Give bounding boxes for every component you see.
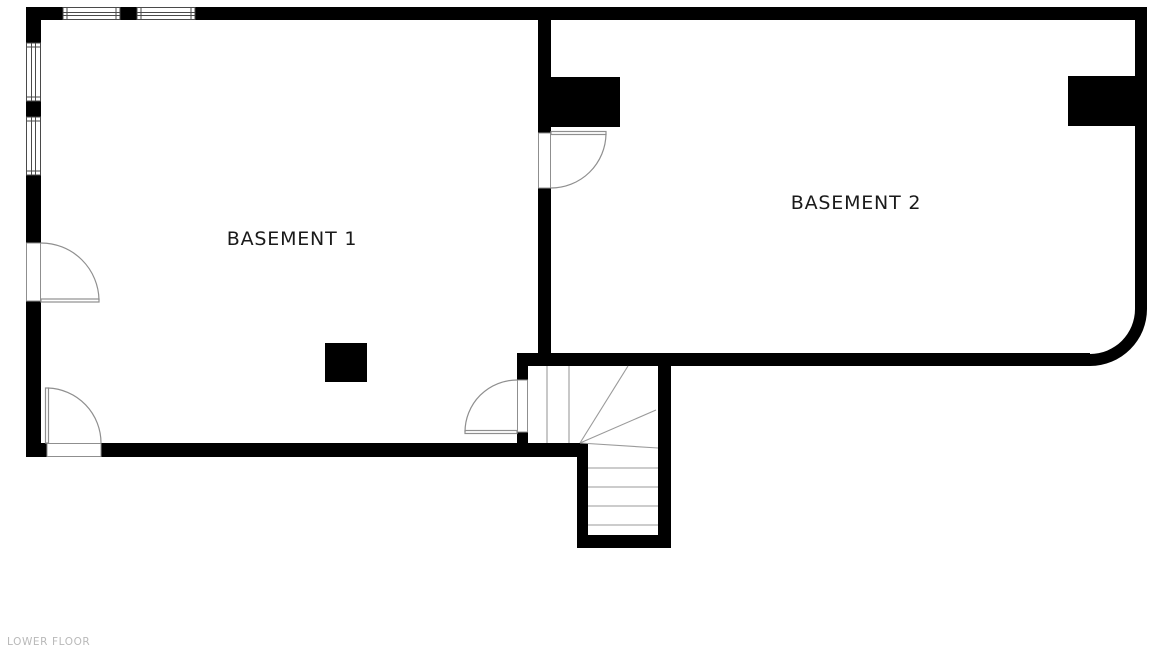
door-symbol-left-wall	[27, 243, 100, 302]
door-swing-arc	[465, 380, 517, 432]
winder-tread	[580, 366, 628, 443]
stair-wall-bottom	[577, 535, 671, 548]
left-wall-segment	[26, 7, 41, 43]
door-swing-arc	[41, 243, 99, 300]
window-symbol-top-2	[137, 8, 195, 20]
pillars	[325, 76, 1135, 382]
door-swing-arc	[551, 134, 606, 188]
floor-name-label: LOWER FLOOR	[7, 636, 90, 648]
stair-wall-right	[658, 353, 671, 548]
door-symbol-dividing-wall	[539, 132, 607, 189]
window-symbol-top-1	[63, 8, 120, 20]
left-wall-pier	[26, 101, 41, 117]
dividing-wall-segment	[538, 188, 551, 366]
rounded-corner-wall	[1090, 309, 1147, 366]
stair-wall-lower-left	[577, 443, 588, 548]
stair-wall-left-upper	[517, 353, 528, 380]
winder-tread	[580, 443, 658, 448]
pillar-dividing-wall	[548, 77, 620, 127]
right-wall	[1135, 20, 1147, 309]
exterior-walls	[26, 7, 1147, 457]
pillar-right-wall	[1068, 76, 1135, 126]
winder-tread	[580, 410, 656, 443]
window-symbol-left-1	[27, 43, 41, 101]
door-swing-arc	[48, 388, 101, 443]
floor-plan-page: BASEMENT 1 BASEMENT 2 LOWER FLOOR	[0, 0, 1157, 656]
bottom-wall-segment	[101, 443, 588, 457]
stair-wall-left-lower	[517, 432, 528, 457]
top-wall-mullion	[120, 7, 137, 20]
floor-plan-drawing: BASEMENT 1 BASEMENT 2 LOWER FLOOR	[0, 0, 1157, 656]
left-wall-segment	[26, 175, 41, 243]
window-symbol-left-2	[27, 117, 41, 175]
left-wall-segment	[26, 301, 41, 443]
door-symbol-bottom-wall	[46, 388, 102, 457]
top-wall-segment	[195, 7, 1147, 20]
bottom-wall-segment	[26, 443, 47, 457]
room-label-basement-1: BASEMENT 1	[227, 228, 357, 250]
room-label-basement-2: BASEMENT 2	[791, 192, 921, 214]
basement2-bottom-wall	[517, 353, 1090, 366]
pillar-basement1	[325, 343, 367, 382]
door-symbol-staircase	[465, 380, 528, 434]
